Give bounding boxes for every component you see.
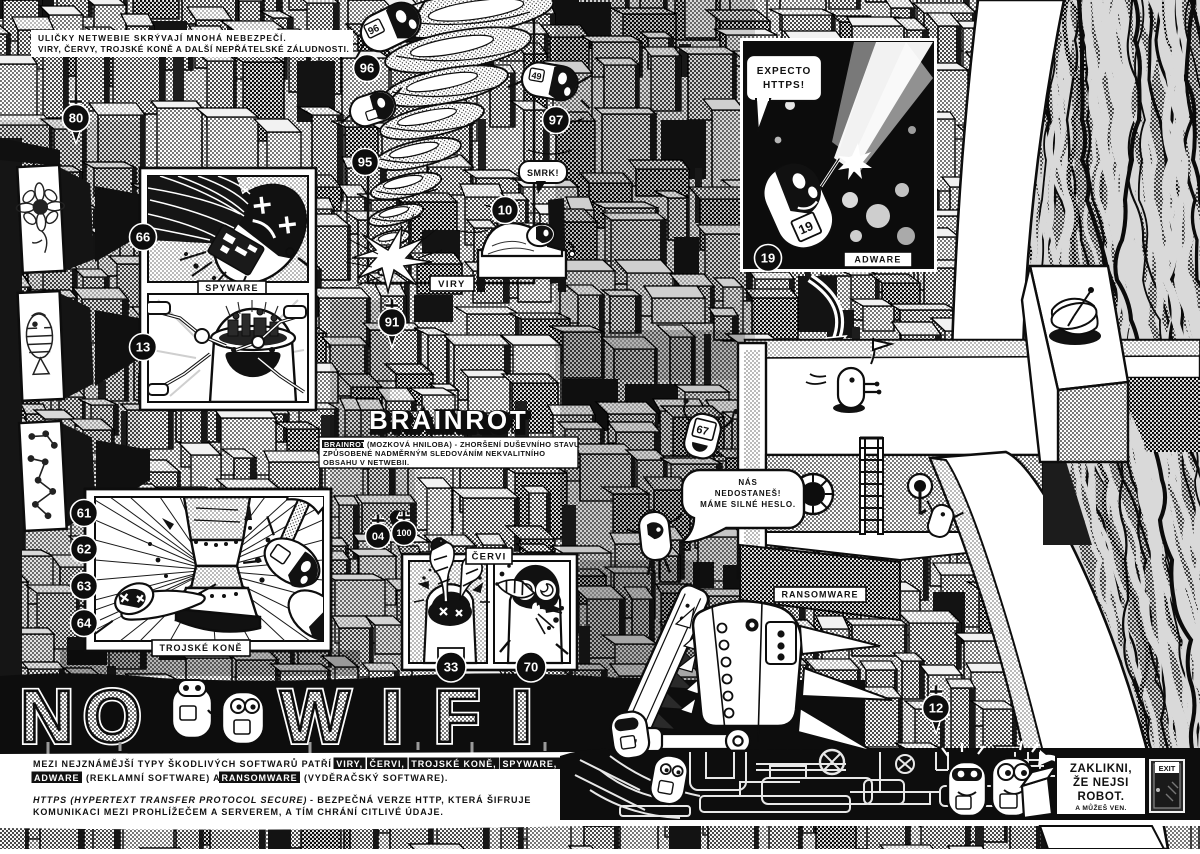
- svg-text:HTTPS (HYPERTEXT TRANSFER PROT: HTTPS (HYPERTEXT TRANSFER PROTOCOL SECUR…: [33, 795, 307, 805]
- svg-text:(REKLAMNÍ SOFTWARE) A: (REKLAMNÍ SOFTWARE) A: [86, 773, 221, 783]
- svg-text:(MOZKOVÁ HNILOBA) - ZHORŠENÍ D: (MOZKOVÁ HNILOBA) - ZHORŠENÍ DUŠEVNÍHO S…: [367, 440, 580, 449]
- svg-text:- BEZPEČNÁ VERZE HTTP, KTERÁ Š: - BEZPEČNÁ VERZE HTTP, KTERÁ ŠIFRUJE: [310, 794, 531, 805]
- svg-text:NO: NO: [20, 675, 151, 758]
- svg-text:EXIT: EXIT: [1159, 764, 1176, 773]
- svg-text:ŽE NEJSI: ŽE NEJSI: [1073, 776, 1129, 789]
- svg-text:(VYDĚRAČSKÝ SOFTWARE).: (VYDĚRAČSKÝ SOFTWARE).: [304, 772, 448, 783]
- svg-text:VIRY, ČERVY, TROJSKÉ KONĚ A DA: VIRY, ČERVY, TROJSKÉ KONĚ A DALŠÍ NEPŘÁT…: [38, 43, 349, 54]
- svg-text:63: 63: [77, 579, 91, 594]
- svg-text:MEZI NEJZNÁMĚJŠÍ TYPY ŠKODLIVÝ: MEZI NEJZNÁMĚJŠÍ TYPY ŠKODLIVÝCH SOFTWAR…: [33, 758, 332, 769]
- svg-text:10: 10: [498, 203, 512, 218]
- svg-text:ADWARE: ADWARE: [34, 773, 79, 783]
- svg-text:ČERVI,: ČERVI,: [370, 758, 405, 769]
- svg-text:OBSAHU V NETWEBII.: OBSAHU V NETWEBII.: [323, 458, 409, 467]
- svg-text:RANSOMWARE: RANSOMWARE: [782, 590, 859, 600]
- svg-text:ZAKLIKNI,: ZAKLIKNI,: [1070, 763, 1132, 775]
- svg-text:91: 91: [385, 315, 399, 330]
- svg-text:ADWARE: ADWARE: [854, 255, 901, 265]
- svg-text:TROJSKÉ KONĚ,: TROJSKÉ KONĚ,: [411, 758, 496, 769]
- svg-text:NEDOSTANEŠ!: NEDOSTANEŠ!: [715, 489, 781, 498]
- svg-text:64: 64: [77, 616, 92, 631]
- svg-text:VIRY,: VIRY,: [336, 759, 363, 769]
- svg-text:66: 66: [136, 230, 150, 245]
- svg-text:97: 97: [549, 113, 563, 128]
- svg-text:70: 70: [524, 660, 538, 675]
- svg-text:WIFI: WIFI: [280, 675, 564, 758]
- svg-text:13: 13: [136, 340, 150, 355]
- svg-text:SPYWARE,: SPYWARE,: [503, 759, 558, 769]
- svg-text:TROJSKÉ KONĚ: TROJSKÉ KONĚ: [159, 642, 242, 653]
- svg-text:SMRK!: SMRK!: [527, 168, 559, 178]
- svg-text:100: 100: [396, 528, 411, 538]
- svg-text:SPYWARE: SPYWARE: [205, 283, 258, 293]
- svg-text:12: 12: [929, 701, 943, 716]
- svg-text:80: 80: [69, 111, 83, 126]
- svg-text:ČERVI: ČERVI: [472, 550, 507, 562]
- svg-text:49: 49: [531, 70, 543, 82]
- svg-text:33: 33: [444, 660, 458, 675]
- svg-text:95: 95: [358, 155, 372, 170]
- svg-text:EXPECTO: EXPECTO: [757, 66, 812, 77]
- svg-text:BRAINROT: BRAINROT: [324, 440, 366, 449]
- svg-text:KOMUNIKACI MEZI PROHLÍŽEČEM A: KOMUNIKACI MEZI PROHLÍŽEČEM A SERVEREM, …: [33, 806, 444, 817]
- svg-text:61: 61: [77, 506, 91, 521]
- svg-text:VIRY: VIRY: [438, 279, 466, 290]
- svg-text:62: 62: [77, 542, 91, 557]
- svg-text:19: 19: [761, 251, 775, 266]
- svg-text:RANSOMWARE: RANSOMWARE: [222, 773, 298, 783]
- svg-text:NÁS: NÁS: [738, 478, 757, 487]
- svg-text:HTTPS!: HTTPS!: [763, 80, 805, 91]
- svg-text:04: 04: [372, 531, 385, 543]
- svg-text:ROBOT.: ROBOT.: [1077, 791, 1124, 803]
- svg-text:MÁME SILNÉ HESLO.: MÁME SILNÉ HESLO.: [700, 500, 796, 509]
- svg-text:ZPŮSOBENÉ NADMĚRNÝM SLEDOVÁNÍM: ZPŮSOBENÉ NADMĚRNÝM SLEDOVÁNÍM NEKVALITN…: [323, 448, 545, 458]
- svg-text:BRAINROT: BRAINROT: [369, 405, 529, 435]
- svg-text:ULIČKY NETWEBIE SKRÝVAJÍ MNOHÁ: ULIČKY NETWEBIE SKRÝVAJÍ MNOHÁ NEBEZPEČÍ…: [38, 32, 287, 43]
- svg-text:96: 96: [360, 61, 374, 76]
